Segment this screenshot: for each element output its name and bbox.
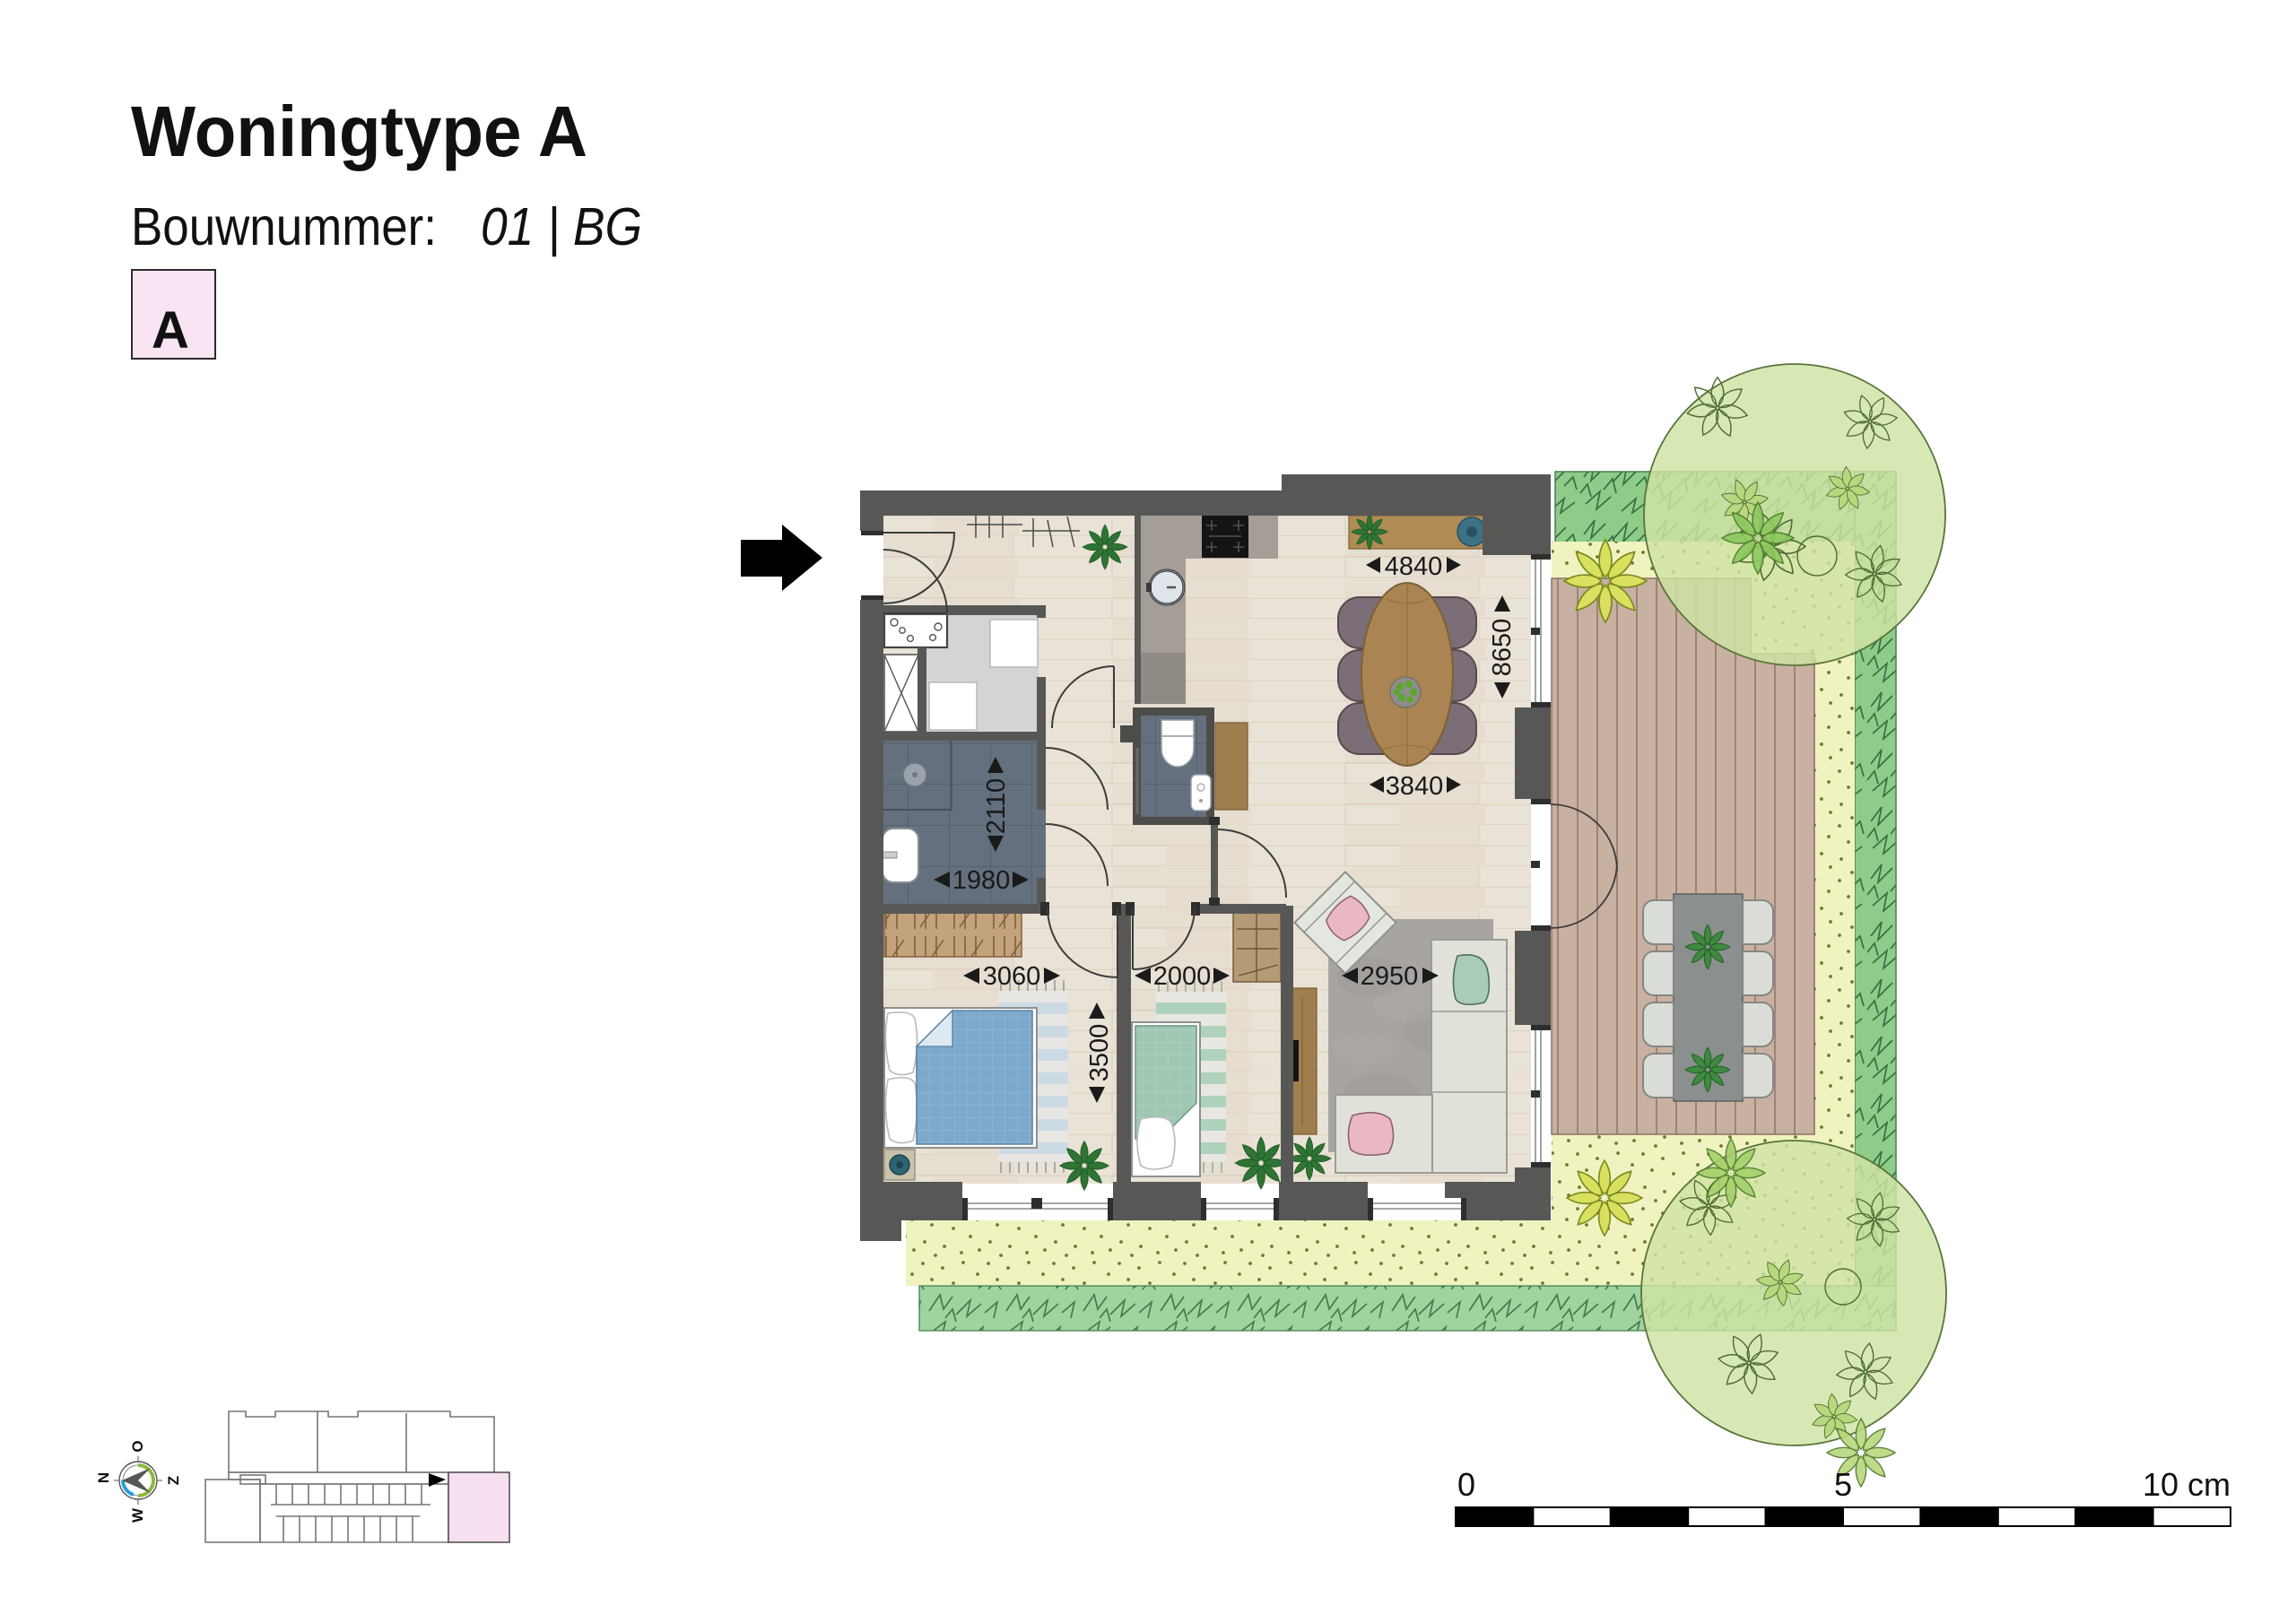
svg-text:O: O bbox=[129, 1440, 146, 1452]
svg-text:Bouwnummer:: Bouwnummer: bbox=[131, 197, 437, 256]
svg-text:0: 0 bbox=[1457, 1466, 1475, 1503]
svg-text:4840: 4840 bbox=[1385, 552, 1443, 581]
svg-text:5: 5 bbox=[1834, 1466, 1852, 1503]
svg-text:2950: 2950 bbox=[1361, 962, 1419, 991]
svg-text:3500: 3500 bbox=[1085, 1024, 1114, 1082]
svg-text:3840: 3840 bbox=[1386, 772, 1444, 801]
svg-text:N: N bbox=[95, 1472, 112, 1483]
svg-text:Z: Z bbox=[165, 1476, 182, 1485]
svg-text:2110: 2110 bbox=[982, 778, 1011, 834]
svg-text:A: A bbox=[152, 301, 189, 360]
svg-text:01 | BG: 01 | BG bbox=[481, 197, 642, 257]
svg-text:W: W bbox=[129, 1507, 146, 1523]
svg-text:10 cm: 10 cm bbox=[2143, 1466, 2231, 1503]
svg-text:Woningtype A: Woningtype A bbox=[131, 91, 587, 171]
svg-text:3060: 3060 bbox=[983, 962, 1041, 991]
svg-text:2000: 2000 bbox=[1153, 962, 1212, 991]
svg-text:1980: 1980 bbox=[952, 866, 1011, 895]
svg-text:8650: 8650 bbox=[1488, 619, 1517, 677]
